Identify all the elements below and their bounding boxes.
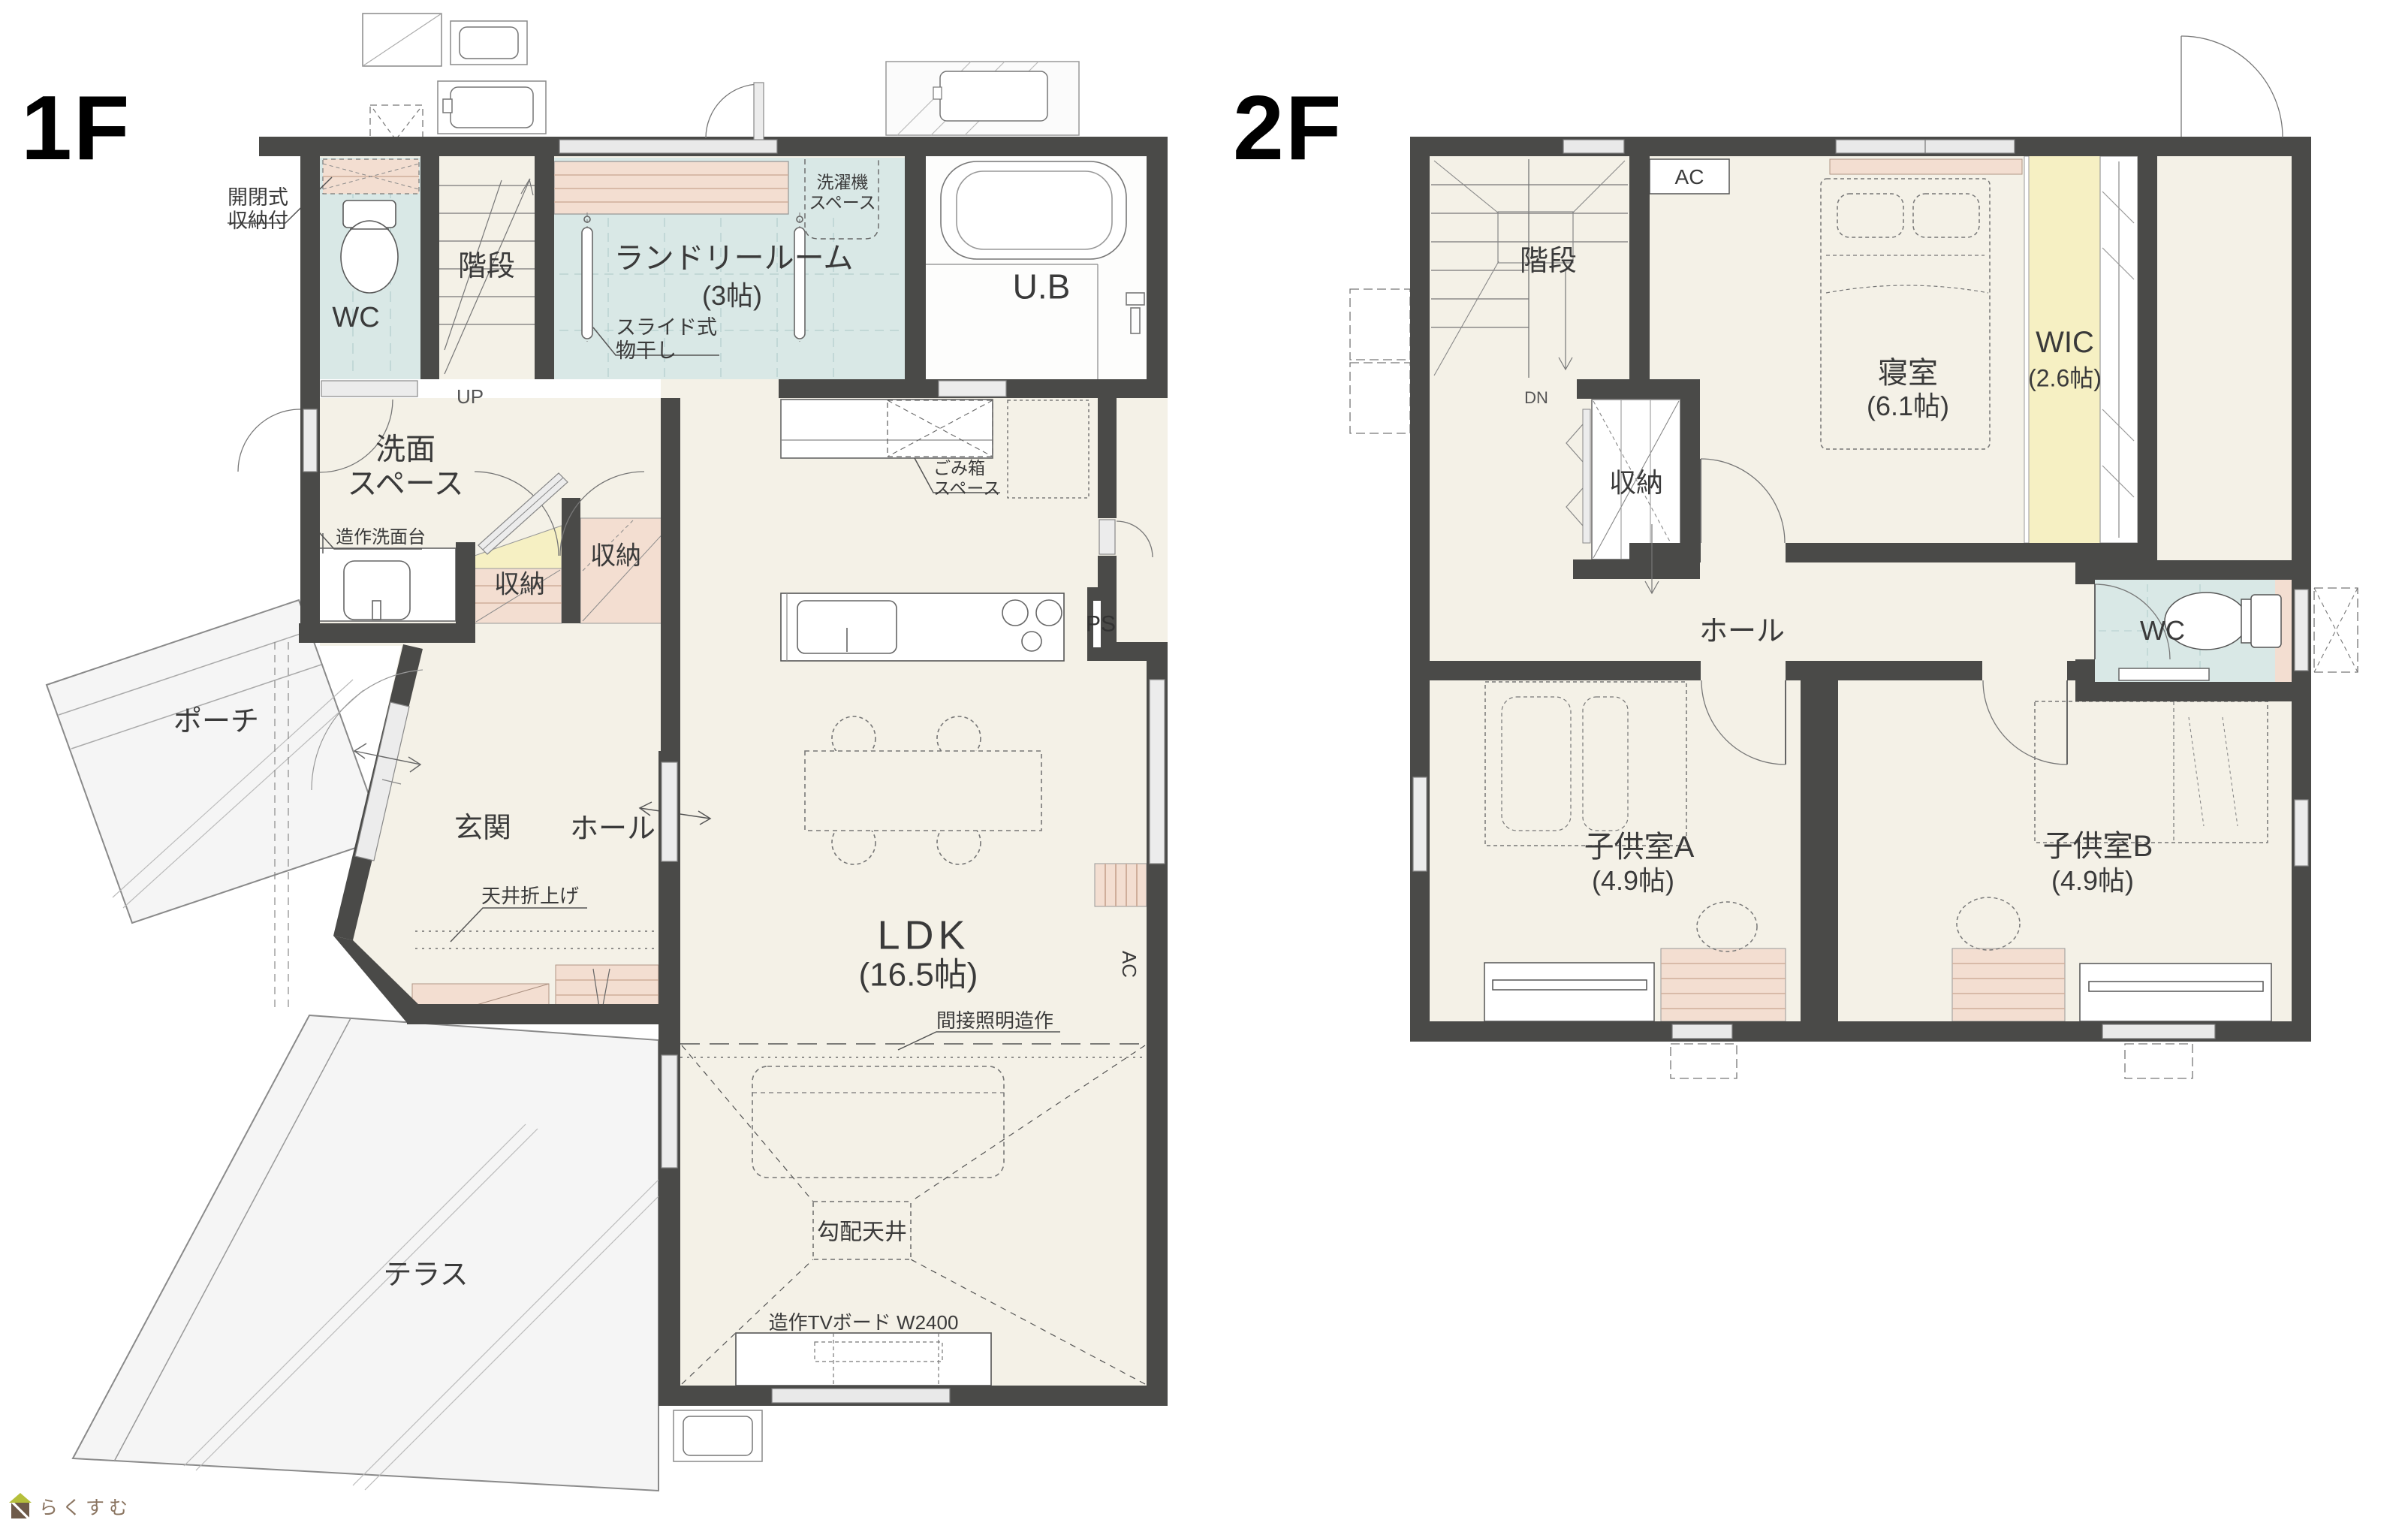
note-ac-1f: AC — [1118, 951, 1141, 978]
room-label-storage-2f: 収納 — [1609, 467, 1663, 499]
room-label-ub: U.B — [1013, 267, 1071, 306]
note-ps: PS — [1086, 612, 1116, 638]
room-label-laundry: ランドリールーム — [614, 241, 854, 276]
room-label-ldk-size: (16.5帖) — [859, 955, 978, 994]
note-ac-2f: AC — [1675, 165, 1704, 189]
f2-floors — [1430, 156, 2297, 1024]
floor2-title: 2F — [1233, 75, 1343, 182]
room-label-wc-2f: WC — [2140, 615, 2185, 647]
room-label-hall-2f: ホール — [1699, 615, 1785, 648]
room-label-kid-a: 子供室A — [1584, 830, 1695, 864]
room-label-bedroom: 寝室 — [1878, 356, 1938, 391]
note-sloped-ceiling: 勾配天井 — [817, 1220, 907, 1247]
room-label-kid-a-size: (4.9帖) — [1592, 865, 1674, 897]
logo-text: らくすむ — [39, 1493, 132, 1520]
room-label-ldk: LDK — [877, 912, 969, 960]
room-label-stairs-1f: 階段 — [458, 250, 515, 283]
note-indirect-light: 間接照明造作 — [936, 1009, 1053, 1032]
room-label-laundry-size: (3帖) — [702, 280, 762, 312]
note-tv-board: 造作TVボード W2400 — [769, 1311, 959, 1334]
note-dn: DN — [1524, 388, 1548, 408]
room-label-storage-b: 収納 — [590, 541, 641, 571]
room-label-bedroom-size: (6.1帖) — [1867, 391, 1949, 422]
floorplan-page: 1F 2F 開閉式 収納付 WC 階段 ランドリールーム (3帖) 洗濯機 スペ… — [0, 0, 2408, 1532]
floor1-title: 1F — [21, 75, 131, 182]
floorplan-drawing — [0, 0, 2408, 1532]
note-hinged-storage: 開閉式 収納付 — [228, 186, 288, 234]
note-ceiling-fold: 天井折上げ — [481, 885, 579, 907]
room-label-entrance: 玄関 — [454, 812, 511, 845]
room-label-stairs-2f: 階段 — [1520, 245, 1577, 278]
note-up: UP — [457, 385, 484, 408]
room-label-storage-a: 収納 — [494, 570, 545, 599]
note-washer-space: 洗濯機 スペース — [809, 172, 875, 212]
room-label-kid-b-size: (4.9帖) — [2051, 865, 2134, 897]
room-label-terrace: テラス — [383, 1259, 468, 1292]
room-label-washroom: 洗面 スペース — [347, 433, 463, 502]
site-logo: らくすむ — [8, 1493, 132, 1520]
note-slide-rack: スライド式 物干し — [616, 316, 717, 363]
house-icon — [8, 1493, 33, 1520]
room-label-wc-1f: WC — [332, 301, 379, 334]
room-label-porch: ポーチ — [173, 705, 259, 738]
room-label-kid-b: 子供室B — [2043, 829, 2153, 864]
room-label-hall-1f: ホール — [570, 813, 655, 846]
room-label-wic: WIC — [2036, 325, 2094, 360]
note-vanity: 造作洗面台 — [336, 527, 426, 548]
note-trash-space: ごみ箱 スペース — [933, 458, 1000, 498]
room-label-wic-size: (2.6帖) — [2028, 364, 2102, 392]
